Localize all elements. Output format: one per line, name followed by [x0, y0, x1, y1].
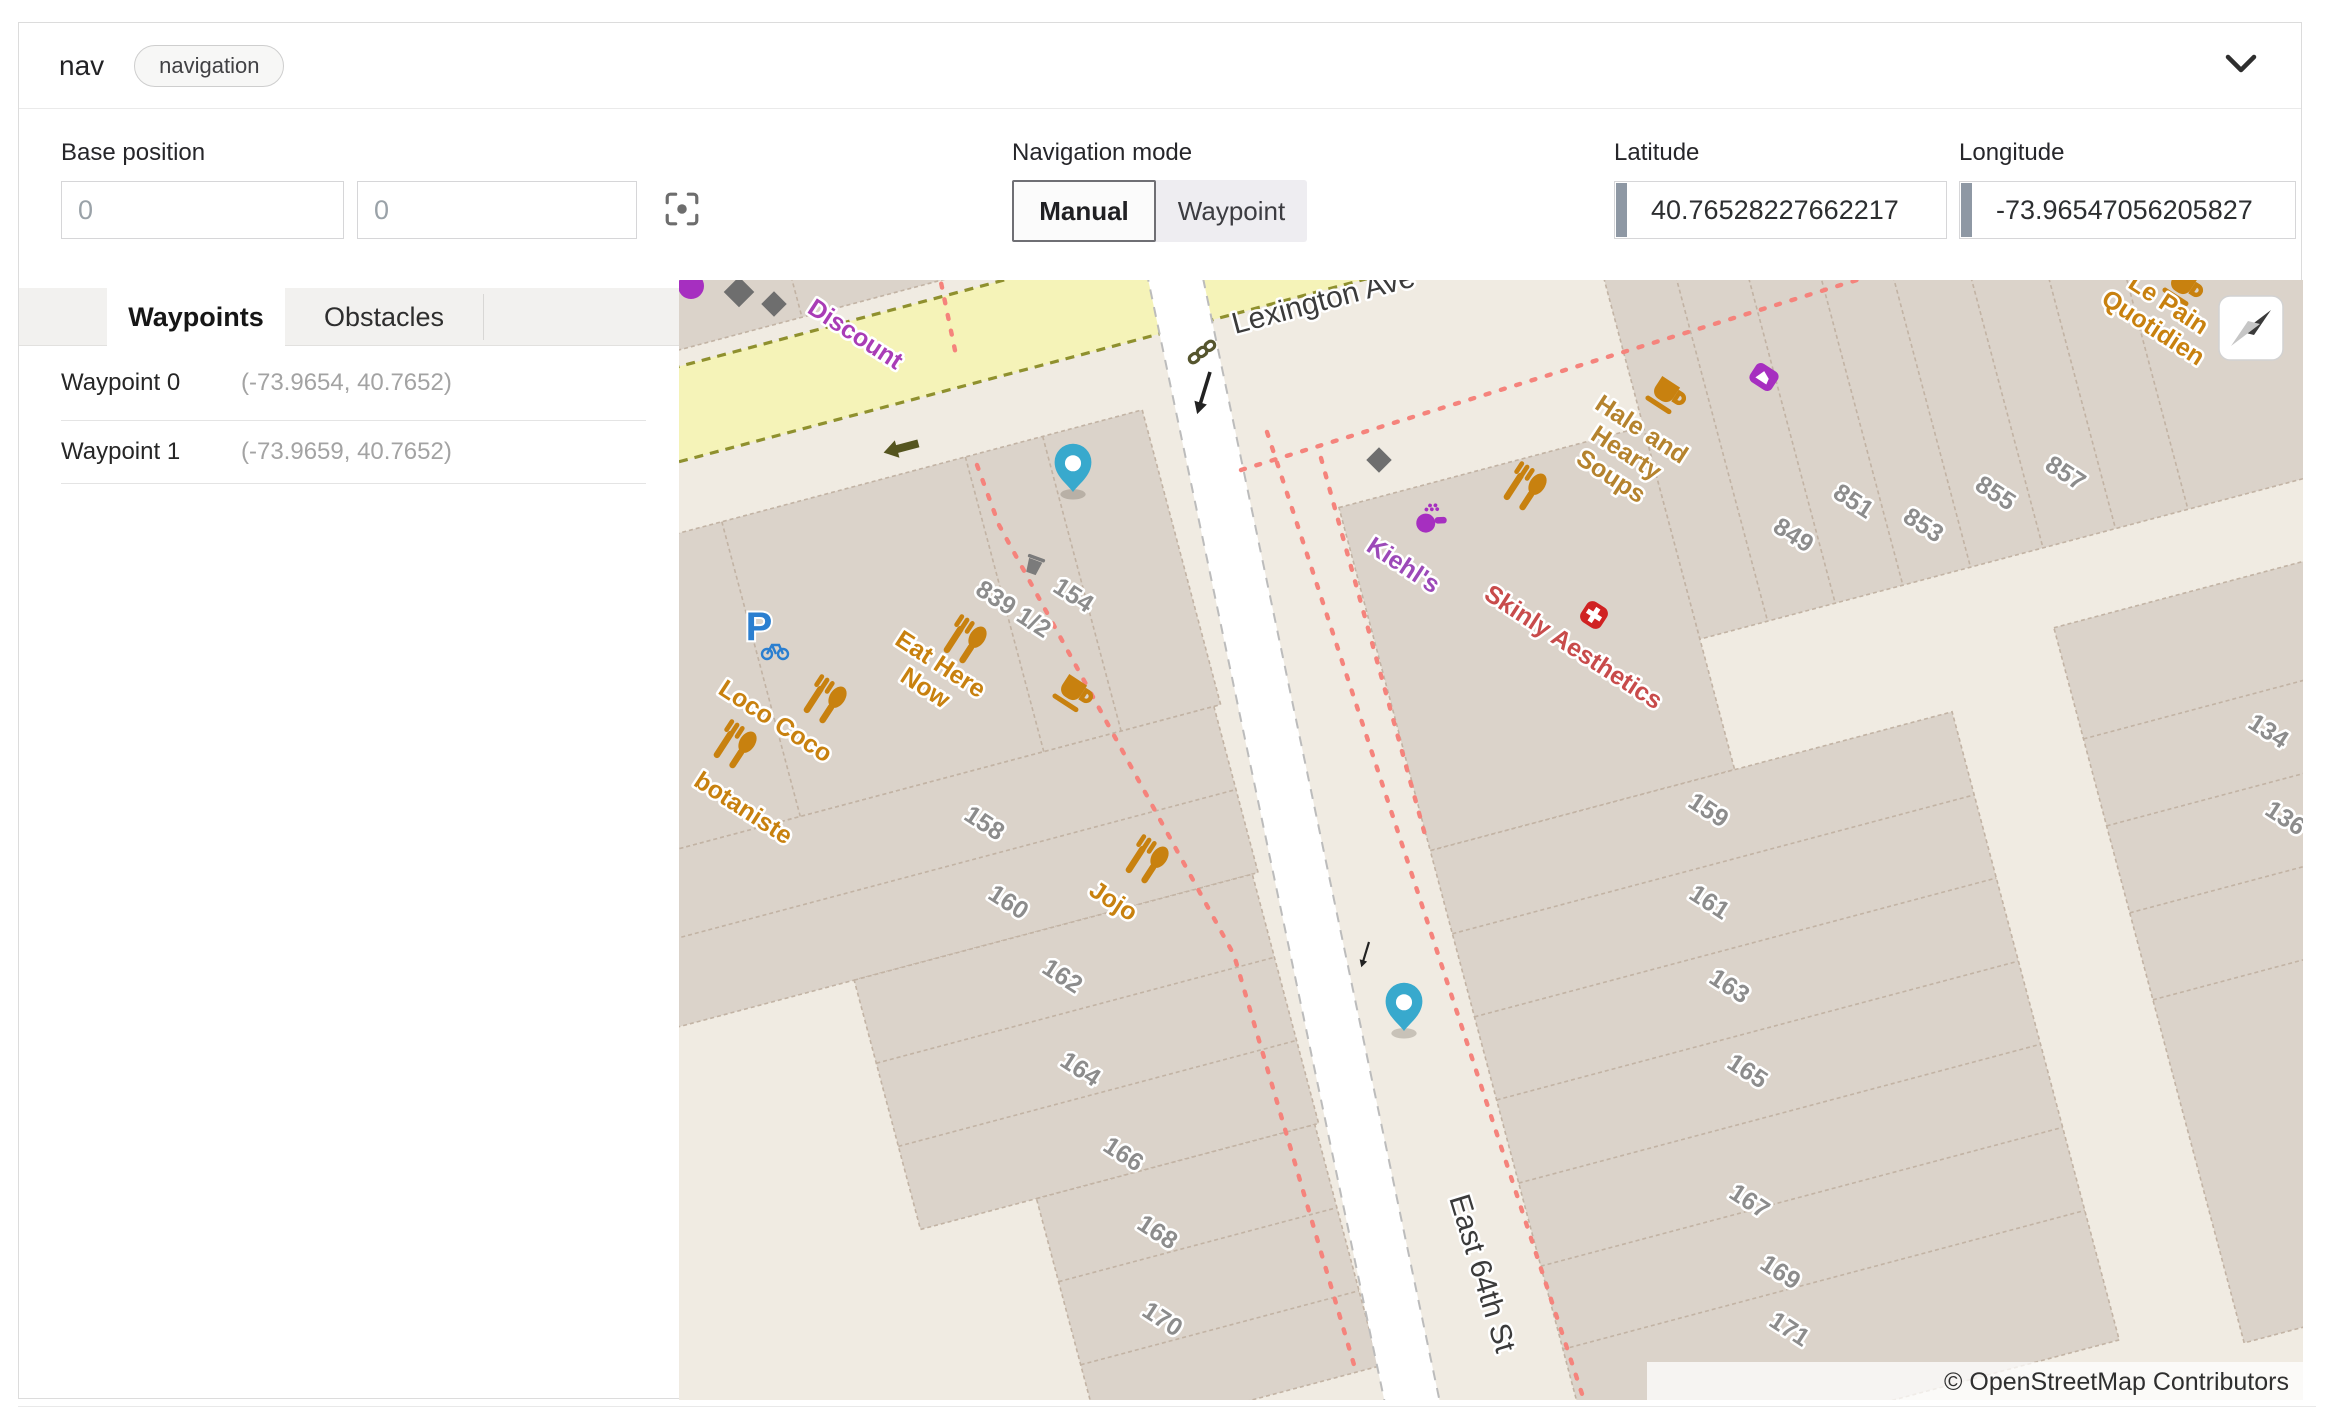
focus-icon	[663, 190, 701, 228]
latitude-accent-bar	[1616, 183, 1627, 237]
card-header: nav navigation	[19, 23, 2301, 109]
mode-waypoint-button[interactable]: Waypoint	[1156, 180, 1307, 242]
center-base-button[interactable]	[659, 187, 705, 233]
waypoint-row-0[interactable]: Waypoint 0 (-73.9654, 40.7652)	[61, 345, 646, 421]
mode-manual-button[interactable]: Manual	[1012, 180, 1156, 242]
longitude-input[interactable]	[1959, 181, 2296, 239]
waypoint-name: Waypoint 1	[61, 438, 241, 466]
base-y-input[interactable]	[357, 181, 637, 239]
svg-text:P: P	[746, 605, 773, 649]
navigation-mode-toggle: Manual Waypoint	[1012, 180, 1307, 242]
waypoint-coords: (-73.9654, 40.7652)	[241, 369, 452, 397]
nav-module-card: nav navigation Base position Navigation …	[18, 22, 2302, 1399]
waypoint-row-1[interactable]: Waypoint 1 (-73.9659, 40.7652)	[61, 421, 646, 484]
longitude-label: Longitude	[1959, 139, 2064, 167]
tab-waypoints[interactable]: Waypoints	[107, 288, 285, 347]
waypoint-name: Waypoint 0	[61, 369, 241, 397]
map-attribution: © OpenStreetMap Contributors	[1647, 1362, 2303, 1400]
longitude-accent-bar	[1961, 183, 1972, 237]
tab-divider	[483, 294, 484, 340]
navigation-mode-label: Navigation mode	[1012, 139, 1192, 167]
latitude-label: Latitude	[1614, 139, 1699, 167]
left-panel-tabbar: Waypoints Obstacles	[19, 288, 679, 346]
latitude-input[interactable]	[1614, 181, 1947, 239]
collapse-button[interactable]	[2221, 50, 2261, 81]
waypoint-coords: (-73.9659, 40.7652)	[241, 438, 452, 466]
base-position-label: Base position	[61, 139, 205, 167]
longitude-field	[1959, 181, 2296, 239]
map-container: P Lexington Ave East 64th St Discount Ea…	[679, 280, 2303, 1400]
svg-text:© OpenStreetMap Contributors: © OpenStreetMap Contributors	[1944, 1368, 2289, 1396]
compass-button[interactable]	[2219, 296, 2283, 360]
latitude-field	[1614, 181, 1947, 239]
chevron-down-icon	[2225, 54, 2257, 74]
base-x-input[interactable]	[61, 181, 344, 239]
tab-obstacles[interactable]: Obstacles	[285, 288, 483, 346]
module-title: nav	[59, 50, 104, 82]
map-canvas[interactable]: P Lexington Ave East 64th St Discount Ea…	[679, 280, 2303, 1400]
module-type-badge: navigation	[134, 45, 284, 87]
next-card-edge	[18, 1406, 2316, 1407]
